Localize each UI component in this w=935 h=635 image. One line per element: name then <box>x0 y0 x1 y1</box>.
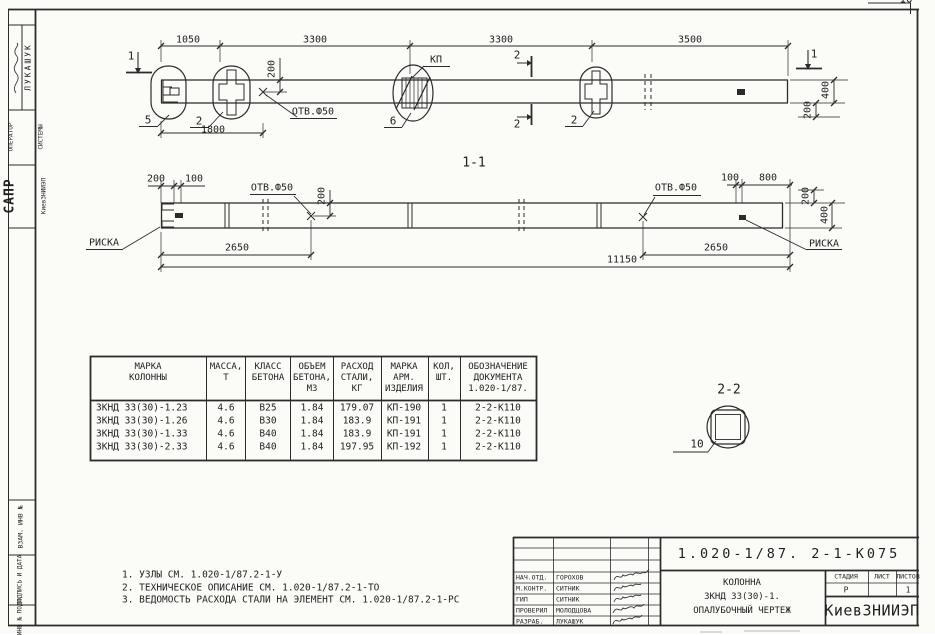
stage-label: СТАДИЯ <box>834 573 857 580</box>
drawing-sheet: 10 ЛУКАШУК ОПЕРАТОР СИСТЕМЫ САПР КиевЗНИ… <box>0 0 935 634</box>
table-header: 1.020-1/87. <box>468 384 528 394</box>
dim-100-right: 100 <box>721 172 739 184</box>
table-cell: 4.6 <box>217 417 234 428</box>
sheet-label: ЛИСТ <box>874 573 890 580</box>
role-name: ГОРОХОВ <box>556 574 583 581</box>
table-header: Т <box>223 373 228 383</box>
table-cell: ЗКНД 33(30)-2.33 <box>96 443 188 454</box>
table-header: КОЛОННЫ <box>129 373 167 383</box>
sidebar-cell-podpis-data: ПОДПИСЬ И ДАТА <box>18 555 25 606</box>
otv-f50-label-left: ОТВ.Ф50 <box>251 182 293 194</box>
org-name: КиевЗНИИЭП <box>824 602 919 619</box>
sidebar-org-small: КиевЗНИИЭП <box>41 178 48 214</box>
table-cell: 1.84 <box>301 443 324 454</box>
table-header: МАРКА <box>134 362 161 372</box>
sheets-label: ЛИСТОВ <box>896 573 919 580</box>
dim-2650-left: 2650 <box>225 242 249 254</box>
role-label: М.КОНТР. <box>516 585 547 592</box>
table-cell: В40 <box>259 443 276 454</box>
table-header: ОБЪЕМ <box>298 362 325 372</box>
sheet-frame <box>8 10 919 626</box>
sidebar-cell-inv-podl: ИНВ № ПОДЛ <box>18 599 25 635</box>
table-header: КОЛ, <box>433 362 455 372</box>
section-1-1-view <box>86 179 845 272</box>
stage-value: Р <box>844 585 849 594</box>
sidebar-org-big: САПР <box>3 178 18 214</box>
table-cell: ЗКНД 33(30)-1.23 <box>96 404 188 415</box>
table-cell: 183.9 <box>343 417 372 428</box>
table-header: БЕТОНА <box>252 373 285 383</box>
table-cell: 4.6 <box>217 430 234 441</box>
sidebar-signature <box>14 43 18 93</box>
role-label: ПРОВЕРИЛ <box>516 607 547 614</box>
table-cell: 4.6 <box>217 443 234 454</box>
table-header: МАРКА <box>390 362 417 372</box>
subject-line-2: ЗКНД 33(30)-1. <box>704 592 780 602</box>
role-name: МОЛОДЦОВА <box>556 607 591 614</box>
corner-sheet-number: 10 <box>899 0 912 6</box>
table-cell: 1 <box>441 404 447 415</box>
dim-2650-right: 2650 <box>704 242 728 254</box>
table-cell: КП-192 <box>387 443 421 454</box>
callout-2-right: 2 <box>571 115 578 128</box>
sidebar-role: ОПЕРАТОР СИСТЕМЫ <box>0 123 57 152</box>
dim-400-end-elev: 400 <box>820 81 832 99</box>
table-header: ОБОЗНАЧЕНИЕ <box>468 362 528 372</box>
table-cell: 1.84 <box>301 404 324 415</box>
role-label: НАЧ.ОТД. <box>516 574 547 581</box>
sidebar-author-name: ЛУКАШУК <box>23 43 32 91</box>
role-label: ГИП <box>516 596 528 603</box>
table-cell: В30 <box>259 417 276 428</box>
table-cell: КП-191 <box>387 430 421 441</box>
riska-label-left: РИСКА <box>89 237 119 249</box>
table-header: ИЗДЕЛИЯ <box>385 384 423 394</box>
dim-200-hole-elev: 200 <box>266 60 278 78</box>
table-cell: ЗКНД 33(30)-1.26 <box>96 417 188 428</box>
dim-3300-b: 3300 <box>489 34 513 46</box>
table-cell: 1 <box>441 430 447 441</box>
dim-1800: 1800 <box>201 124 225 136</box>
note-2: 2. ТЕХНИЧЕСКОЕ ОПИСАНИЕ СМ. 1.020-1/87.2… <box>122 584 379 595</box>
sidebar-role-line2: СИСТЕМЫ <box>38 123 45 152</box>
dim-200-end-11: 200 <box>800 187 812 205</box>
table-cell: 2-2-К110 <box>475 443 521 454</box>
subject-line-1: КОЛОННА <box>723 578 761 588</box>
table-header: ШТ. <box>436 373 452 383</box>
table-cell: В40 <box>259 430 276 441</box>
section-mark-1-right: 1 <box>811 49 818 62</box>
scan-artifacts <box>700 631 800 632</box>
table-cell: КП-191 <box>387 417 421 428</box>
dim-3500: 3500 <box>678 34 702 46</box>
callout-2-left: 2 <box>196 116 203 129</box>
table-cell: КП-190 <box>387 404 421 415</box>
section-1-1-title: 1-1 <box>462 157 485 172</box>
sidebar-org: САПР КиевЗНИИЭП <box>0 178 60 214</box>
table-header: М3 <box>307 384 318 394</box>
dim-11150-total: 11150 <box>607 254 637 266</box>
dim-3300-a: 3300 <box>303 34 327 46</box>
table-header: МАССА, <box>210 362 243 372</box>
linework <box>0 0 935 634</box>
dim-200-left: 200 <box>147 173 165 185</box>
table-header: РАСХОД <box>341 362 374 372</box>
role-name: ЛУКАШУК <box>556 618 583 625</box>
table-header: ДОКУМЕНТА <box>474 373 523 383</box>
otv-f50-label-right: ОТВ.Ф50 <box>655 182 697 194</box>
section-2-2-view <box>673 406 749 452</box>
table-cell: 1 <box>441 443 447 454</box>
kp-label: КП <box>430 54 442 66</box>
table-header: КЛАСС <box>254 362 281 372</box>
table-header: АРМ. <box>393 373 415 383</box>
section-mark-2-bottom: 2 <box>514 119 521 132</box>
section-mark-1-left: 1 <box>128 51 135 64</box>
spec-table-columns <box>207 356 461 461</box>
sidebar-role-line1: ОПЕРАТОР <box>8 123 15 152</box>
dim-100-left: 100 <box>185 173 203 185</box>
subject-line-3: ОПАЛУБОЧНЫЙ ЧЕРТЕЖ <box>693 606 791 616</box>
role-name: СИТНИК <box>556 596 579 603</box>
riska-label-right: РИСКА <box>809 238 839 250</box>
callout-6: 6 <box>390 116 397 129</box>
table-cell: 2-2-К110 <box>475 430 521 441</box>
table-cell: 1 <box>441 417 447 428</box>
table-cell: 1.84 <box>301 417 324 428</box>
dim-1050: 1050 <box>176 34 200 46</box>
section-mark-2-top: 2 <box>514 50 521 63</box>
table-cell: ЗКНД 33(30)-1.33 <box>96 430 188 441</box>
table-cell: 2-2-К110 <box>475 404 521 415</box>
dim-200-end-elev: 200 <box>802 101 814 119</box>
table-cell: 183.9 <box>343 430 372 441</box>
dim-400-end-11: 400 <box>819 206 831 224</box>
dim-200-hole-11: 200 <box>316 187 328 205</box>
note-3: 3. ВЕДОМОСТЬ РАСХОДА СТАЛИ НА ЭЛЕМЕНТ СМ… <box>122 596 459 607</box>
elevation-view <box>126 40 848 138</box>
table-cell: 1.84 <box>301 430 324 441</box>
note-1: 1. УЗЛЫ СМ. 1.020-1/87.2-1-У <box>122 571 282 582</box>
table-cell: 179.07 <box>340 404 374 415</box>
table-header: СТАЛИ, <box>341 373 374 383</box>
doc-number: 1.020-1/87. 2-1-К075 <box>678 547 901 563</box>
table-cell: В25 <box>259 404 276 415</box>
table-cell: 4.6 <box>217 404 234 415</box>
dim-800-right: 800 <box>759 172 777 184</box>
table-header: БЕТОНА, <box>293 373 331 383</box>
callout-5: 5 <box>145 115 152 128</box>
sheets-value: 1 <box>906 585 911 594</box>
otv-f50-label-elev: ОТВ.Ф50 <box>292 106 334 118</box>
table-cell: 2-2-К110 <box>475 417 521 428</box>
role-name: СИТНИК <box>556 585 579 592</box>
table-header: КГ <box>352 384 363 394</box>
callout-10: 10 <box>690 439 703 452</box>
section-2-2-title: 2-2 <box>717 384 740 399</box>
sidebar-cell-vzam-inv: ВЗАМ. ИНВ № <box>17 505 24 548</box>
table-cell: 197.95 <box>340 443 374 454</box>
role-label: РАЗРАБ. <box>516 618 543 625</box>
